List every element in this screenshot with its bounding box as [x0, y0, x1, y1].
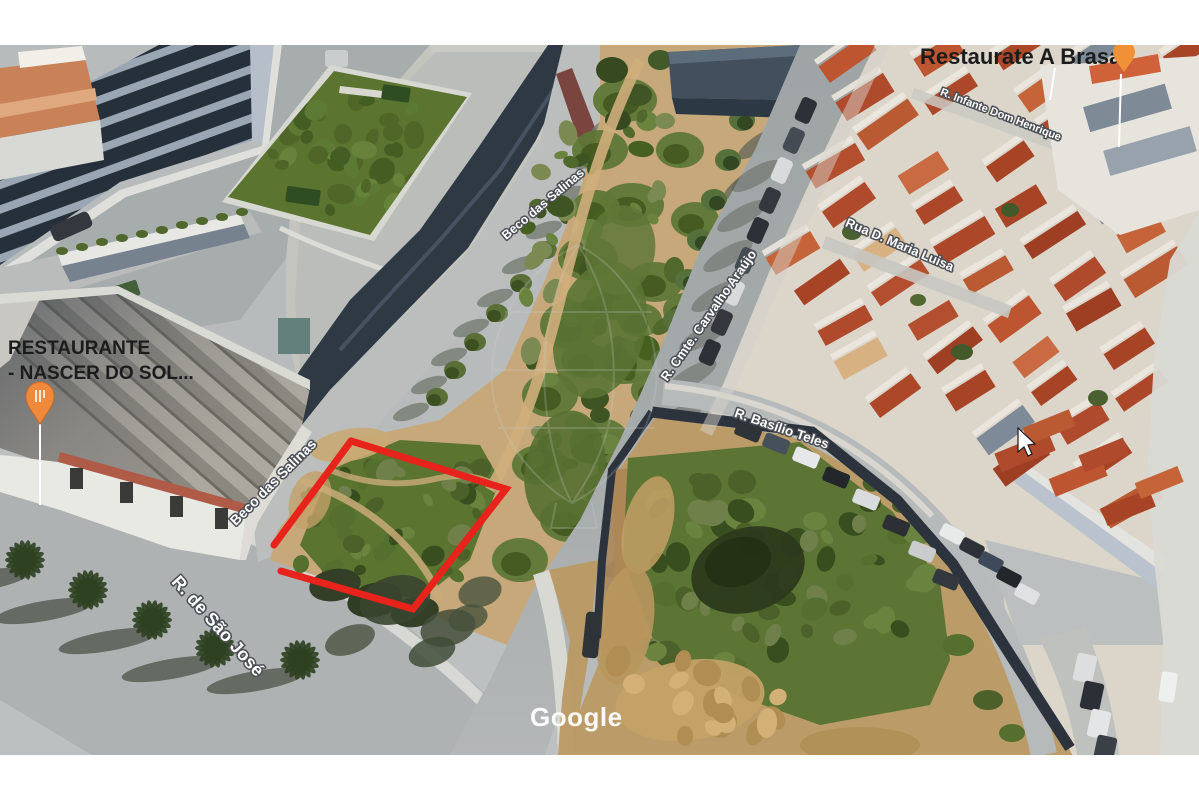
svg-text:- NASCER DO SOL...: - NASCER DO SOL...	[8, 363, 194, 384]
svg-text:RESTAURANTE: RESTAURANTE	[8, 338, 150, 359]
svg-text:Restaurate A Brasa: Restaurate A Brasa	[920, 44, 1122, 69]
svg-text:Google: Google	[530, 702, 623, 732]
